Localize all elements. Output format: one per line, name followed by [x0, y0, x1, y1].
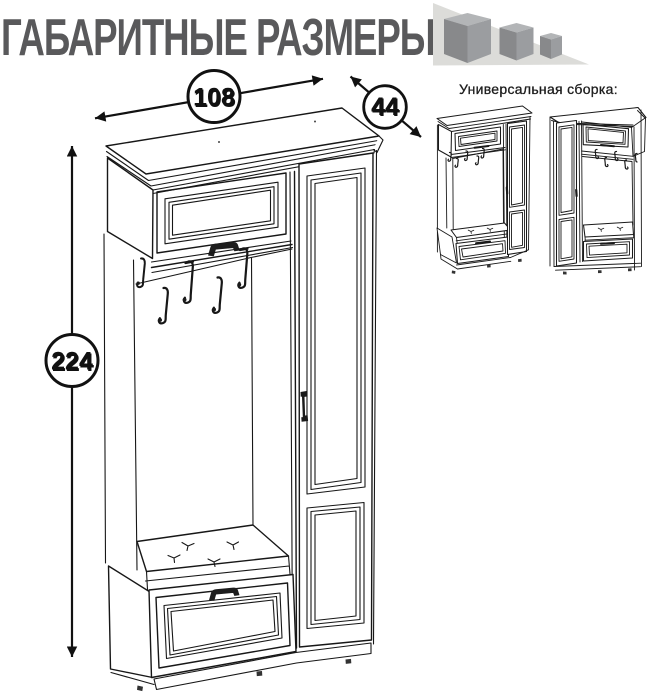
- svg-text:44: 44: [371, 93, 399, 121]
- svg-text:224: 224: [51, 348, 93, 376]
- svg-text:108: 108: [193, 84, 235, 112]
